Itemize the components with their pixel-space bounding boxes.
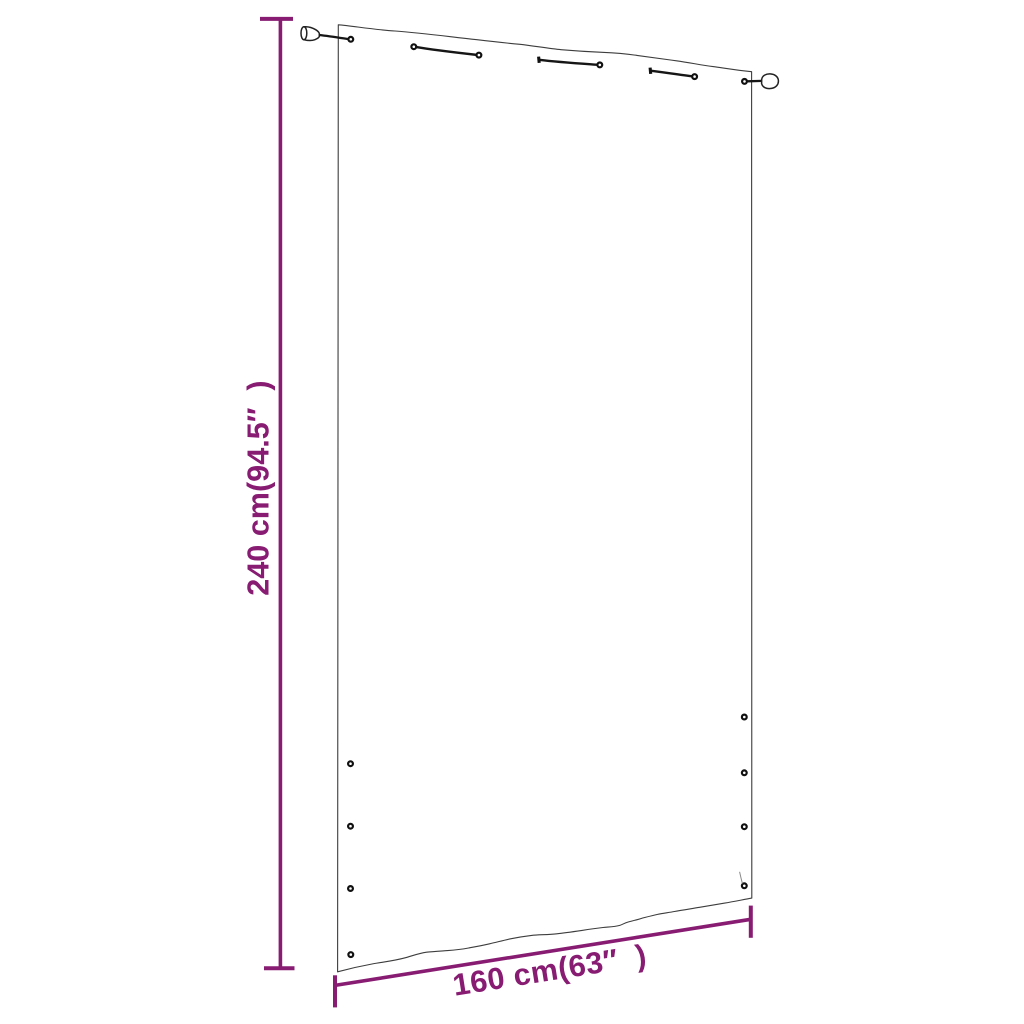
svg-text:240 cm(94.5″ ): 240 cm(94.5″ )	[242, 380, 276, 595]
